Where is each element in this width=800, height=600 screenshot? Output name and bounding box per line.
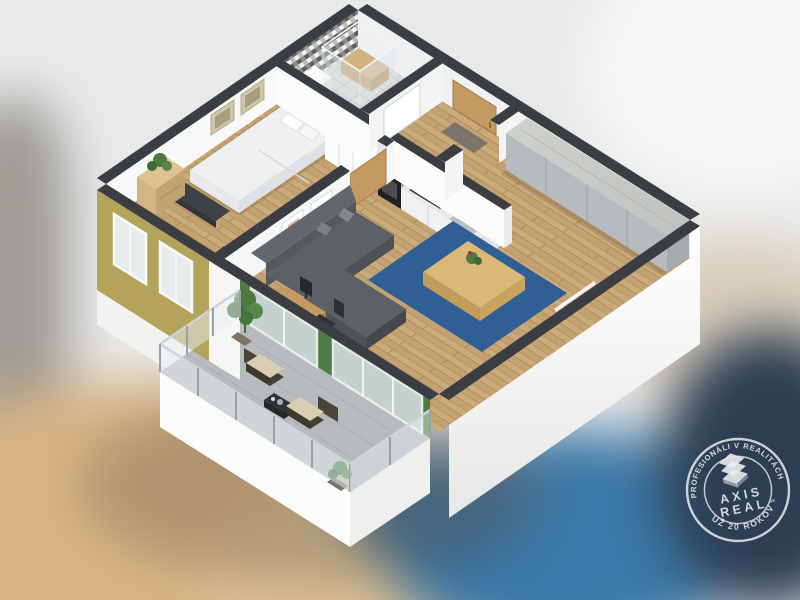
floorplan-render-page: PROFESIONÁLI V REALITÁCH UŽ 20 ROKOV AXI…	[0, 0, 800, 600]
watermark-stamp: PROFESIONÁLI V REALITÁCH UŽ 20 ROKOV AXI…	[678, 430, 799, 551]
stamp-brand-suffix: SK	[769, 497, 777, 503]
isometric-floor-plan: PROFESIONÁLI V REALITÁCH UŽ 20 ROKOV AXI…	[0, 0, 800, 600]
